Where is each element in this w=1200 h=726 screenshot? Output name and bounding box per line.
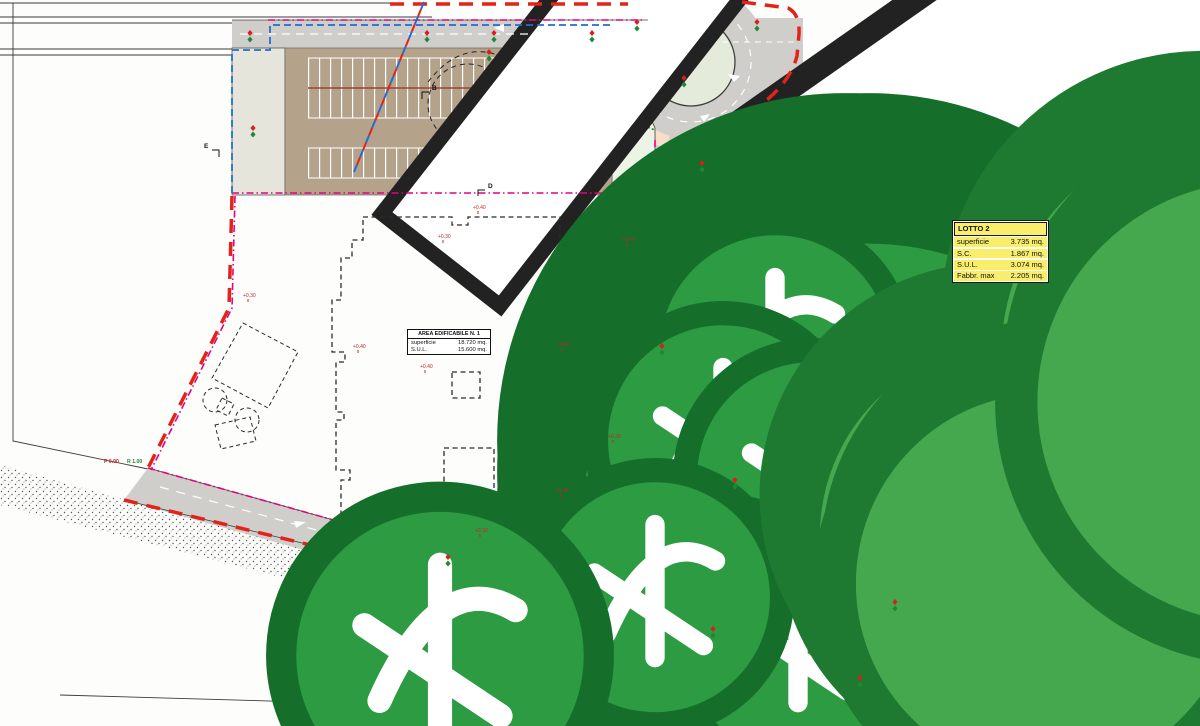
legend-label: superficie [957, 237, 989, 247]
section-d: D [488, 183, 493, 190]
legend-row: Fabbr. max 2.205 mq. [954, 271, 1047, 281]
tree-strip [232, 48, 285, 195]
spot-elevation-label: +0.30 [243, 293, 256, 299]
legend-row: superficie 3.735 mq. [954, 237, 1047, 247]
legend-label: Fabbr. max [957, 271, 995, 281]
legend-value: 3.074 mq. [1011, 260, 1044, 270]
spot-elevation-label: +0.40 [420, 364, 433, 370]
lotto2-legend-title: LOTTO 2 [954, 222, 1047, 236]
spot-elevation-label: +0.30 [475, 528, 488, 534]
spot-elevation-label: +0.30 [438, 234, 451, 240]
lotto2-legend: LOTTO 2 superficie 3.735 mq. S.C. 1.867 … [952, 220, 1049, 283]
legend-row: S.C. 1.867 mq. [954, 249, 1047, 259]
area-box-row: superficie 18.720 mq. [408, 339, 490, 346]
site-plan-svg: 2.50 4.25 4.25 6.00 10.50 15.00 72.00 10… [0, 0, 1200, 726]
spot-elevation-label: +0.30 [608, 434, 621, 440]
site-plan-canvas: 2.50 4.25 4.25 6.00 10.50 15.00 72.00 10… [0, 0, 1200, 726]
area-box-title: AREA EDIFICABILE N. 1 [408, 330, 490, 339]
legend-value: 1.867 mq. [1011, 249, 1044, 259]
legend-row: S.U.L. 3.074 mq. [954, 260, 1047, 270]
spot-elevation-label: +0.45 [622, 237, 635, 243]
area-box-row: S.U.L. 15.600 mq. [408, 346, 490, 354]
area-box-value: 15.600 mq. [458, 347, 487, 353]
spot-elevation-label: +0.45 [556, 488, 569, 494]
survey-note-p: P 0.00 [104, 459, 119, 465]
area-box-label: superficie [411, 340, 436, 346]
area-edificabile-box: AREA EDIFICABILE N. 1 superficie 18.720 … [407, 329, 491, 355]
spot-elevation-label: +0.30 [557, 342, 570, 348]
existing-structures-dashed [203, 323, 298, 449]
area-box-label: S.U.L. [411, 347, 427, 353]
spot-elevation-label: +0.40 [353, 344, 366, 350]
area-box-value: 18.720 mq. [458, 340, 487, 346]
tree-icon [281, 497, 599, 726]
section-b: B [432, 85, 437, 92]
legend-value: 2.205 mq. [1011, 271, 1044, 281]
spot-elevation-label: +0.40 [473, 205, 486, 211]
legend-value: 3.735 mq. [1011, 237, 1044, 247]
section-e: E [204, 143, 209, 150]
legend-label: S.C. [957, 249, 972, 259]
legend-label: S.U.L. [957, 260, 978, 270]
survey-note-r: R 1.00 [127, 459, 142, 465]
